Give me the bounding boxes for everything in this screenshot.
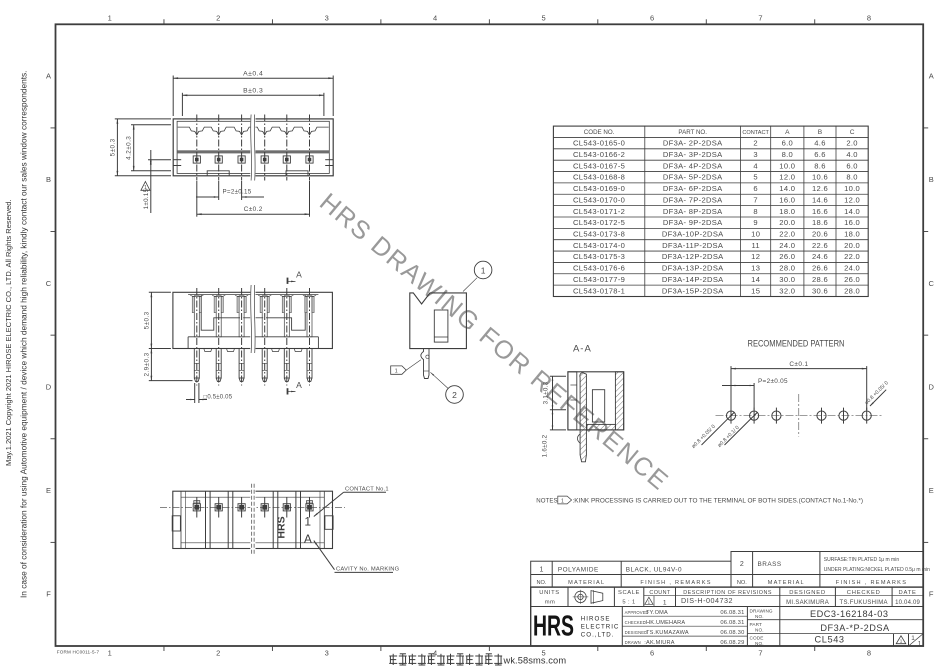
svg-text:NO.: NO. bbox=[755, 628, 764, 633]
svg-text:FINISH , REMARKS: FINISH , REMARKS bbox=[836, 580, 907, 586]
svg-text:2.9±0.3: 2.9±0.3 bbox=[143, 352, 150, 376]
svg-text:A: A bbox=[785, 129, 790, 136]
svg-text:C±0.1: C±0.1 bbox=[789, 361, 808, 368]
svg-text:CO.,LTD.: CO.,LTD. bbox=[581, 631, 615, 638]
svg-text:6: 6 bbox=[753, 184, 758, 193]
svg-text:CL543-0175-3: CL543-0175-3 bbox=[573, 252, 625, 261]
svg-text:mm: mm bbox=[545, 599, 555, 605]
svg-text:3.1±0.3: 3.1±0.3 bbox=[542, 381, 549, 404]
svg-text:8: 8 bbox=[867, 649, 871, 658]
svg-text:2: 2 bbox=[753, 139, 758, 148]
svg-text:28.0: 28.0 bbox=[844, 286, 860, 295]
svg-text:06.08.29: 06.08.29 bbox=[720, 640, 744, 646]
svg-text:PART NO.: PART NO. bbox=[678, 129, 707, 136]
svg-text:CL543-0174-0: CL543-0174-0 bbox=[573, 241, 625, 250]
svg-text:12.0: 12.0 bbox=[844, 195, 860, 204]
svg-text:DF3A-12P-2DSA: DF3A-12P-2DSA bbox=[662, 252, 724, 261]
svg-text:wk.58sms.com: wk.58sms.com bbox=[503, 655, 567, 665]
svg-text:2: 2 bbox=[216, 649, 220, 658]
svg-text:5: 5 bbox=[541, 13, 545, 22]
svg-text:5±0.3: 5±0.3 bbox=[143, 311, 150, 329]
svg-text:1: 1 bbox=[911, 635, 915, 642]
svg-text:DRAWN: DRAWN bbox=[625, 640, 641, 645]
svg-text:DF3A-13P-2DSA: DF3A-13P-2DSA bbox=[662, 264, 724, 273]
svg-text:28.0: 28.0 bbox=[779, 264, 795, 273]
svg-text:CL543-0165-0: CL543-0165-0 bbox=[573, 139, 625, 148]
svg-text:□0.5±0.05: □0.5±0.05 bbox=[204, 395, 233, 401]
svg-text:15: 15 bbox=[751, 286, 760, 295]
svg-text:In case of consideration for u: In case of consideration for using Autom… bbox=[19, 71, 29, 598]
svg-text:NO.: NO. bbox=[755, 641, 764, 646]
svg-text:E: E bbox=[46, 486, 51, 495]
svg-text:DF3A- 3P-2DSA: DF3A- 3P-2DSA bbox=[663, 150, 723, 159]
svg-text:1: 1 bbox=[540, 566, 544, 573]
svg-text:ELECTRIC: ELECTRIC bbox=[581, 623, 620, 630]
svg-text:8.0: 8.0 bbox=[782, 150, 793, 159]
svg-text:4.6: 4.6 bbox=[814, 139, 825, 148]
svg-text:1: 1 bbox=[918, 640, 922, 647]
svg-text:1: 1 bbox=[108, 649, 112, 658]
svg-text:SCALE: SCALE bbox=[618, 590, 640, 596]
svg-text:32.0: 32.0 bbox=[779, 286, 795, 295]
svg-text:2.0: 2.0 bbox=[846, 139, 857, 148]
svg-text:CHECKED: CHECKED bbox=[625, 620, 646, 625]
svg-text:DF3A-10P-2DSA: DF3A-10P-2DSA bbox=[662, 230, 724, 239]
svg-text:14: 14 bbox=[751, 275, 760, 284]
svg-text:B: B bbox=[818, 129, 823, 136]
svg-text:C: C bbox=[46, 279, 52, 288]
svg-text:CL543-0177-9: CL543-0177-9 bbox=[573, 275, 625, 284]
svg-text:5 : 1: 5 : 1 bbox=[622, 600, 635, 606]
svg-text:C: C bbox=[928, 279, 934, 288]
svg-text:20.0: 20.0 bbox=[844, 241, 860, 250]
svg-text:UNDER PLATING:NICKEL PLATED 0.: UNDER PLATING:NICKEL PLATED 0.5μ m min bbox=[824, 567, 930, 573]
svg-text:C±0.2: C±0.2 bbox=[244, 206, 263, 213]
svg-text:3: 3 bbox=[325, 649, 329, 658]
svg-text:B: B bbox=[46, 175, 51, 184]
svg-text:1: 1 bbox=[663, 599, 667, 606]
svg-text:12.0: 12.0 bbox=[779, 173, 795, 182]
svg-text:30.0: 30.0 bbox=[779, 275, 795, 284]
svg-text:22.0: 22.0 bbox=[844, 252, 860, 261]
svg-text:18.0: 18.0 bbox=[779, 207, 795, 216]
svg-text:14.6: 14.6 bbox=[812, 195, 828, 204]
svg-text:DF3A- 5P-2DSA: DF3A- 5P-2DSA bbox=[663, 173, 723, 182]
svg-text:DF3A-*P-2DSA: DF3A-*P-2DSA bbox=[820, 623, 890, 633]
svg-text:06.08.31: 06.08.31 bbox=[720, 610, 744, 616]
svg-text:6.0: 6.0 bbox=[846, 161, 857, 170]
svg-text:1±0.15: 1±0.15 bbox=[143, 188, 150, 209]
svg-text:A: A bbox=[296, 270, 302, 280]
svg-text:5±0.3: 5±0.3 bbox=[109, 138, 116, 156]
svg-text:7: 7 bbox=[758, 649, 762, 658]
svg-text:DF3A- 7P-2DSA: DF3A- 7P-2DSA bbox=[663, 195, 723, 204]
svg-text:D: D bbox=[46, 382, 52, 391]
svg-text:2: 2 bbox=[452, 390, 457, 400]
svg-text:26.6: 26.6 bbox=[812, 264, 828, 273]
svg-text:CL543-0171-2: CL543-0171-2 bbox=[573, 207, 625, 216]
svg-text:CL543-0172-5: CL543-0172-5 bbox=[573, 218, 625, 227]
svg-text:MATERIAL: MATERIAL bbox=[768, 580, 805, 586]
svg-text:6.0: 6.0 bbox=[782, 139, 793, 148]
svg-text:F: F bbox=[46, 590, 51, 599]
svg-text:8: 8 bbox=[867, 13, 871, 22]
svg-text:A: A bbox=[929, 72, 934, 81]
svg-text:POLYAMIDE: POLYAMIDE bbox=[558, 566, 599, 573]
svg-text:DF3A- 6P-2DSA: DF3A- 6P-2DSA bbox=[663, 184, 723, 193]
svg-text:EDC3-162184-03: EDC3-162184-03 bbox=[810, 609, 889, 619]
svg-text:16.0: 16.0 bbox=[844, 218, 860, 227]
svg-text:5: 5 bbox=[753, 173, 758, 182]
svg-text:DESCRIPTION OF REVISIONS: DESCRIPTION OF REVISIONS bbox=[683, 590, 772, 596]
svg-text:6.6: 6.6 bbox=[814, 150, 825, 159]
svg-text:11: 11 bbox=[751, 241, 759, 250]
svg-text:30.6: 30.6 bbox=[812, 286, 828, 295]
svg-text:6: 6 bbox=[650, 649, 654, 658]
svg-text:RECOMMENDED PATTERN: RECOMMENDED PATTERN bbox=[748, 338, 845, 348]
svg-text:A: A bbox=[296, 380, 302, 390]
svg-text:2: 2 bbox=[740, 561, 744, 568]
svg-text:3: 3 bbox=[753, 150, 758, 159]
svg-text:10.6: 10.6 bbox=[812, 173, 828, 182]
svg-text:1: 1 bbox=[395, 369, 398, 375]
svg-text:CODE: CODE bbox=[750, 635, 764, 640]
svg-text:HRS: HRS bbox=[533, 611, 574, 643]
svg-text:06.08.30: 06.08.30 bbox=[720, 630, 744, 636]
svg-text::HK.UMEHARA: :HK.UMEHARA bbox=[644, 620, 685, 626]
svg-text:DESIGNED: DESIGNED bbox=[789, 590, 826, 596]
svg-text:May.1.2021 Copyright 2021 HIRO: May.1.2021 Copyright 2021 HIROSE ELECTRI… bbox=[4, 200, 13, 467]
svg-text:MATERIAL: MATERIAL bbox=[568, 580, 605, 586]
svg-text::TY.OMA: :TY.OMA bbox=[644, 610, 668, 616]
svg-text:DF3A- 8P-2DSA: DF3A- 8P-2DSA bbox=[663, 207, 723, 216]
svg-text:CAVITY No. MARKING: CAVITY No. MARKING bbox=[336, 567, 400, 573]
svg-text:A: A bbox=[46, 72, 51, 81]
svg-text:CL543-0170-0: CL543-0170-0 bbox=[573, 195, 625, 204]
svg-text:C: C bbox=[850, 129, 855, 136]
svg-text:1: 1 bbox=[481, 265, 486, 275]
svg-text:MI.SAKIMURA: MI.SAKIMURA bbox=[786, 600, 829, 606]
svg-text:B: B bbox=[929, 175, 934, 184]
svg-text:FINISH , REMARKS: FINISH , REMARKS bbox=[640, 580, 711, 586]
svg-text:A±0.4: A±0.4 bbox=[243, 71, 263, 78]
svg-text:7: 7 bbox=[758, 13, 762, 22]
svg-text:8.6: 8.6 bbox=[814, 161, 825, 170]
svg-text:TS.FUKUSHIMA: TS.FUKUSHIMA bbox=[840, 600, 888, 606]
svg-text:26.0: 26.0 bbox=[779, 252, 795, 261]
svg-text:DRAWING: DRAWING bbox=[750, 608, 773, 613]
svg-text:A-A: A-A bbox=[573, 344, 592, 355]
svg-text:1: 1 bbox=[900, 639, 903, 644]
svg-text:1: 1 bbox=[304, 515, 311, 529]
svg-text:2: 2 bbox=[216, 13, 220, 22]
svg-text:14.0: 14.0 bbox=[844, 207, 860, 216]
svg-text:D: D bbox=[928, 382, 934, 391]
svg-text:10.0: 10.0 bbox=[779, 161, 795, 170]
svg-text:CONTACT: CONTACT bbox=[742, 130, 769, 136]
svg-text:SURFASE:TIN PLATED 1μ m min: SURFASE:TIN PLATED 1μ m min bbox=[824, 557, 900, 563]
svg-text:24.0: 24.0 bbox=[844, 264, 860, 273]
svg-text:14.0: 14.0 bbox=[779, 184, 795, 193]
svg-text:1: 1 bbox=[144, 185, 147, 191]
svg-text:CL543-0166-2: CL543-0166-2 bbox=[573, 150, 625, 159]
svg-text:BRASS: BRASS bbox=[758, 561, 782, 568]
svg-text:26.0: 26.0 bbox=[844, 275, 860, 284]
svg-text:CL543-0169-0: CL543-0169-0 bbox=[573, 184, 625, 193]
svg-text:12.6: 12.6 bbox=[812, 184, 828, 193]
svg-text:PART: PART bbox=[750, 622, 763, 627]
svg-text:24.6: 24.6 bbox=[812, 252, 828, 261]
svg-text:DF3A- 4P-2DSA: DF3A- 4P-2DSA bbox=[663, 161, 723, 170]
svg-text:A: A bbox=[304, 532, 312, 546]
svg-text:NO.: NO. bbox=[537, 580, 547, 586]
svg-text:FORM HC0011-5-7: FORM HC0011-5-7 bbox=[57, 650, 100, 655]
svg-text:NO.: NO. bbox=[755, 614, 764, 619]
svg-text:10: 10 bbox=[751, 230, 760, 239]
svg-text:DF3A-15P-2DSA: DF3A-15P-2DSA bbox=[662, 286, 724, 295]
svg-text::TS.KUMAZAWA: :TS.KUMAZAWA bbox=[644, 630, 689, 636]
svg-text:6: 6 bbox=[650, 13, 654, 22]
svg-text:CL543-0168-8: CL543-0168-8 bbox=[573, 173, 625, 182]
svg-text:DF3A- 2P-2DSA: DF3A- 2P-2DSA bbox=[663, 139, 723, 148]
svg-text:18.0: 18.0 bbox=[844, 230, 860, 239]
svg-text:CL543-0173-8: CL543-0173-8 bbox=[573, 230, 625, 239]
svg-text:CODE NO.: CODE NO. bbox=[584, 129, 615, 136]
svg-text:24.0: 24.0 bbox=[779, 241, 795, 250]
svg-text:HIROSE: HIROSE bbox=[581, 615, 611, 622]
svg-text::AK.MIURA: :AK.MIURA bbox=[644, 640, 674, 646]
svg-text:NOTES: NOTES bbox=[536, 497, 558, 504]
svg-text:UNITS: UNITS bbox=[539, 590, 559, 596]
svg-text:NO.: NO. bbox=[737, 580, 747, 586]
svg-text:4.2±0.3: 4.2±0.3 bbox=[126, 136, 133, 160]
svg-text:9: 9 bbox=[753, 218, 758, 227]
svg-text:16.6: 16.6 bbox=[812, 207, 828, 216]
svg-text:22.6: 22.6 bbox=[812, 241, 828, 250]
svg-text:CL543: CL543 bbox=[815, 635, 845, 645]
svg-text:BLACK, UL94V-0: BLACK, UL94V-0 bbox=[626, 566, 682, 573]
svg-text:4: 4 bbox=[433, 13, 437, 22]
svg-text:B±0.3: B±0.3 bbox=[243, 88, 263, 95]
svg-text:1: 1 bbox=[108, 13, 112, 22]
svg-text:F: F bbox=[929, 590, 934, 599]
svg-text:20.6: 20.6 bbox=[812, 230, 828, 239]
svg-text:COUNT: COUNT bbox=[649, 590, 670, 596]
svg-text:DF3A-11P-2DSA: DF3A-11P-2DSA bbox=[662, 241, 724, 250]
svg-text:13: 13 bbox=[751, 264, 760, 273]
svg-text:12: 12 bbox=[751, 252, 760, 261]
svg-text:CL543-0167-5: CL543-0167-5 bbox=[573, 161, 625, 170]
svg-text:10.0: 10.0 bbox=[844, 184, 860, 193]
svg-text:10.04.09: 10.04.09 bbox=[895, 600, 920, 606]
svg-text:20.0: 20.0 bbox=[779, 218, 795, 227]
svg-text:4: 4 bbox=[753, 161, 758, 170]
svg-text:8.0: 8.0 bbox=[846, 173, 857, 182]
svg-text:7: 7 bbox=[753, 195, 758, 204]
svg-text:DIS-H-004732: DIS-H-004732 bbox=[681, 596, 733, 605]
svg-text:HRS: HRS bbox=[276, 516, 288, 538]
svg-text:CL543-0178-1: CL543-0178-1 bbox=[573, 286, 625, 295]
svg-text:16.0: 16.0 bbox=[779, 195, 795, 204]
svg-text:CONTACT No.1: CONTACT No.1 bbox=[345, 487, 389, 493]
svg-text:18.6: 18.6 bbox=[812, 218, 828, 227]
svg-text:28.6: 28.6 bbox=[812, 275, 828, 284]
svg-text:22.0: 22.0 bbox=[779, 230, 795, 239]
svg-text:4.0: 4.0 bbox=[846, 150, 857, 159]
svg-text:DF3A- 9P-2DSA: DF3A- 9P-2DSA bbox=[663, 218, 723, 227]
svg-text:DATE: DATE bbox=[898, 590, 916, 596]
svg-text:P=2±0.15: P=2±0.15 bbox=[222, 189, 251, 196]
svg-text:P=2±0.05: P=2±0.05 bbox=[758, 378, 788, 385]
svg-text:3: 3 bbox=[325, 13, 329, 22]
svg-text:CL543-0176-6: CL543-0176-6 bbox=[573, 264, 625, 273]
svg-text:1.6±0.2: 1.6±0.2 bbox=[542, 434, 549, 457]
svg-text::KINK PROCESSING IS CARRIED OU: :KINK PROCESSING IS CARRIED OUT TO THE T… bbox=[573, 497, 863, 504]
svg-text:CHECKED: CHECKED bbox=[847, 590, 881, 596]
svg-text:8: 8 bbox=[753, 207, 758, 216]
svg-text:DF3A-14P-2DSA: DF3A-14P-2DSA bbox=[662, 275, 724, 284]
svg-text:1: 1 bbox=[561, 499, 564, 505]
svg-text:E: E bbox=[929, 486, 934, 495]
svg-text:06.08.31: 06.08.31 bbox=[720, 620, 744, 626]
